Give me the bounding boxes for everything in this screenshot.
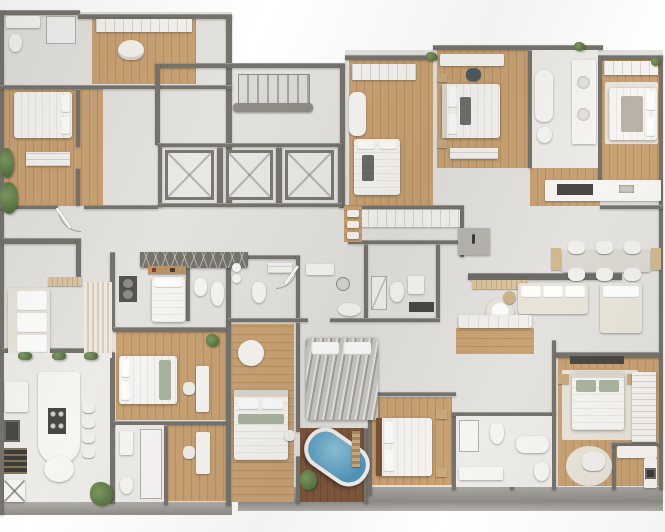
side-table-right bbox=[503, 291, 516, 304]
sink-basin bbox=[577, 76, 590, 89]
elevator-cabin-1 bbox=[165, 150, 214, 200]
pillow bbox=[238, 399, 259, 410]
pillow bbox=[121, 359, 130, 378]
bed-e bbox=[234, 390, 288, 460]
desk-bedroom-b bbox=[440, 54, 504, 66]
sink-bath-f bbox=[194, 278, 207, 296]
pillow bbox=[61, 95, 70, 113]
wall bbox=[76, 89, 80, 147]
island-cooktop bbox=[48, 408, 66, 434]
shelf-books bbox=[170, 268, 175, 272]
towel-roll bbox=[232, 274, 241, 283]
wall bbox=[330, 318, 440, 322]
sofa-cushion bbox=[521, 286, 541, 298]
sofa-cushion bbox=[603, 286, 639, 298]
towel-stack bbox=[347, 221, 359, 228]
vanity-top-left-bath bbox=[6, 16, 40, 28]
bed-throw bbox=[460, 97, 471, 125]
tub-top-right bbox=[535, 70, 553, 122]
pillow bbox=[312, 342, 339, 355]
washer-door bbox=[123, 279, 133, 288]
dining-chair bbox=[596, 268, 613, 281]
vanity-bath-h bbox=[306, 264, 334, 275]
counter-bath-i bbox=[409, 302, 434, 312]
vanity-bath-i bbox=[408, 276, 424, 294]
island-round-end bbox=[44, 456, 74, 482]
wall bbox=[0, 85, 78, 89]
wall bbox=[436, 244, 440, 318]
faucet bbox=[472, 234, 475, 244]
nightstand bbox=[436, 468, 447, 477]
stair-railing bbox=[233, 103, 313, 112]
kitchenette-counter bbox=[617, 446, 657, 458]
desk-chair-d bbox=[183, 382, 195, 395]
staff-bed bbox=[152, 277, 185, 322]
nightstand bbox=[558, 374, 569, 384]
wall bbox=[552, 340, 556, 490]
wall-elevator bbox=[338, 143, 342, 207]
round-table-bedroom-e bbox=[238, 340, 264, 366]
tufted-bench-right bbox=[458, 315, 532, 328]
wall bbox=[598, 55, 602, 180]
cabinet-x-front bbox=[4, 480, 25, 502]
tub-bath-br2 bbox=[516, 436, 549, 453]
plant-left-edge bbox=[0, 148, 14, 178]
floor-bench-right bbox=[456, 328, 534, 354]
wall bbox=[600, 205, 663, 209]
wall bbox=[155, 63, 345, 68]
towel-roll bbox=[232, 263, 241, 272]
bed-b bbox=[442, 84, 500, 138]
washer-door bbox=[123, 290, 133, 299]
elevator-cabin-2 bbox=[226, 150, 273, 200]
sofa-right bbox=[518, 283, 588, 314]
wall bbox=[84, 205, 158, 209]
wall bbox=[226, 256, 231, 506]
island-stool bbox=[82, 417, 95, 428]
toilet-top-right bbox=[537, 127, 552, 143]
bed-suite bbox=[572, 372, 624, 430]
bed-f bbox=[376, 418, 432, 476]
wall bbox=[164, 425, 168, 505]
pillow bbox=[262, 399, 283, 410]
kitchen-counter-top-right bbox=[545, 180, 661, 201]
sofa-left bbox=[8, 288, 50, 356]
dining-chair bbox=[624, 268, 641, 281]
planter-top-wall bbox=[574, 42, 585, 51]
bed-throw bbox=[362, 155, 374, 181]
island-sink-right bbox=[458, 228, 490, 255]
bed-throw bbox=[621, 96, 643, 132]
island-stool bbox=[82, 447, 95, 458]
wall-elevator bbox=[276, 147, 282, 205]
pillow bbox=[121, 382, 130, 401]
bed-gray bbox=[306, 338, 378, 420]
kitchen-sink bbox=[619, 185, 634, 193]
linen-shelf bbox=[344, 206, 362, 242]
sofa-cushion bbox=[17, 335, 47, 353]
pillow bbox=[155, 279, 182, 288]
wardrobe-top-left bbox=[96, 19, 192, 32]
sink-basin bbox=[577, 108, 590, 121]
desk-hall-e bbox=[196, 432, 210, 474]
shower-bath-br bbox=[459, 420, 479, 452]
sink-bath-h bbox=[338, 303, 361, 316]
pillow bbox=[357, 141, 375, 150]
bed-c bbox=[609, 88, 657, 140]
wall bbox=[345, 55, 437, 60]
mirror-bath-h bbox=[336, 277, 350, 291]
vanity-bath-br bbox=[459, 467, 503, 480]
sofa-chaise-right bbox=[600, 283, 642, 333]
pillow bbox=[61, 117, 70, 135]
corridor-storage bbox=[350, 210, 460, 227]
dining-bench-end bbox=[651, 248, 661, 270]
bed-d bbox=[119, 356, 177, 404]
toilet-top-left-bath bbox=[9, 34, 22, 52]
nightstand bbox=[437, 74, 447, 82]
dining-chair bbox=[596, 241, 613, 254]
headboard bbox=[572, 372, 624, 378]
pillow bbox=[448, 114, 457, 135]
console-living-left bbox=[48, 277, 82, 286]
wall bbox=[659, 55, 663, 490]
wardrobe-suite bbox=[632, 372, 656, 442]
stool-bedroom-e bbox=[284, 430, 295, 441]
closet-bedroom-a bbox=[352, 64, 416, 80]
sofa-cushion bbox=[543, 286, 563, 298]
shower-bath-d bbox=[140, 429, 162, 499]
nightstand bbox=[437, 140, 447, 148]
wall bbox=[76, 168, 80, 206]
dining-chair bbox=[624, 241, 641, 254]
pillow bbox=[384, 422, 394, 444]
wall bbox=[113, 327, 226, 332]
planter-top-wall bbox=[426, 52, 437, 61]
bed-a bbox=[354, 139, 400, 195]
reading-chair-suite bbox=[582, 452, 605, 471]
chair-hall-e bbox=[183, 446, 195, 459]
double-vanity-top-right bbox=[572, 60, 596, 144]
elevator-cabin-3 bbox=[285, 150, 334, 200]
island-stool bbox=[82, 432, 95, 443]
fridge bbox=[5, 382, 28, 412]
floorplan-render bbox=[0, 0, 665, 532]
nightstand bbox=[436, 410, 447, 419]
toilet-bath-i bbox=[390, 282, 404, 302]
pillow bbox=[448, 87, 457, 108]
oven bbox=[4, 420, 20, 442]
wall bbox=[612, 442, 616, 490]
pillow bbox=[344, 342, 371, 355]
plant-bedroom-d bbox=[206, 334, 219, 347]
slat-wall-divider bbox=[84, 282, 112, 358]
toilet-bath-br bbox=[490, 423, 504, 444]
kitchen-island bbox=[38, 372, 80, 464]
wall bbox=[110, 352, 115, 504]
wall bbox=[2, 238, 80, 244]
toilet-bath-d bbox=[120, 477, 133, 494]
planter-top-wall bbox=[651, 57, 660, 66]
wall-elevator bbox=[217, 147, 223, 205]
wall bbox=[155, 63, 160, 145]
staircase bbox=[238, 74, 310, 106]
toilet-bath-br2 bbox=[534, 462, 549, 481]
island-stool bbox=[82, 402, 95, 413]
plant-kitchen bbox=[90, 482, 113, 506]
wine-rack bbox=[4, 448, 27, 474]
shower-top-left-bath bbox=[46, 16, 76, 44]
headboard bbox=[442, 84, 447, 138]
wall-elevator bbox=[158, 203, 342, 207]
washer-stack bbox=[119, 276, 137, 302]
wall bbox=[368, 392, 456, 396]
dining-chair bbox=[568, 241, 585, 254]
sofa-cushion bbox=[565, 286, 585, 298]
herb-planter bbox=[84, 352, 98, 360]
pillow bbox=[646, 91, 655, 111]
wall bbox=[345, 205, 463, 209]
shower-bath-i bbox=[371, 276, 387, 310]
dining-chair bbox=[568, 268, 585, 281]
herb-planter bbox=[18, 352, 32, 360]
kitchenette-stove bbox=[645, 468, 656, 479]
wall-elevator bbox=[158, 143, 342, 147]
pillow bbox=[599, 380, 619, 392]
shelf-books bbox=[152, 268, 156, 272]
sofa-cushion bbox=[17, 291, 47, 311]
herb-planter bbox=[52, 352, 66, 360]
toilet-bath-g bbox=[252, 282, 266, 303]
wall bbox=[0, 10, 80, 15]
vanity-bath-d bbox=[120, 431, 133, 455]
desk-chair-b bbox=[466, 68, 481, 81]
sofa-cushion bbox=[17, 313, 47, 333]
pillow bbox=[646, 117, 655, 137]
dresser-top-left bbox=[26, 152, 70, 166]
pillow bbox=[576, 380, 596, 392]
dining-bench-end bbox=[551, 248, 561, 270]
plant-spa bbox=[300, 470, 317, 490]
toilet-bath-f bbox=[211, 282, 224, 306]
bed-top-left bbox=[14, 92, 72, 138]
hanging-chair bbox=[118, 40, 144, 60]
tub-bedroom-a bbox=[349, 92, 366, 136]
towel-stack bbox=[347, 210, 359, 217]
towel-ladder bbox=[352, 431, 360, 467]
closet-bedroom-c bbox=[604, 61, 658, 75]
wall bbox=[364, 244, 368, 318]
wall bbox=[296, 322, 300, 432]
wall-elevator bbox=[158, 143, 162, 207]
headboard bbox=[376, 418, 382, 476]
pillow bbox=[379, 141, 397, 150]
staff-shelf bbox=[148, 266, 186, 274]
slab-bottom-left-edge bbox=[2, 502, 232, 515]
towel-stack bbox=[347, 232, 359, 239]
desk-bedroom-d bbox=[196, 366, 209, 412]
cooktop bbox=[557, 184, 593, 195]
pillow bbox=[384, 450, 394, 472]
bench-bedroom-b bbox=[450, 148, 498, 159]
plant-living-left bbox=[0, 182, 18, 214]
bed-runner bbox=[238, 414, 284, 424]
bed-throw bbox=[159, 360, 171, 400]
headboard bbox=[234, 390, 288, 397]
tv-console-suite bbox=[570, 356, 624, 364]
